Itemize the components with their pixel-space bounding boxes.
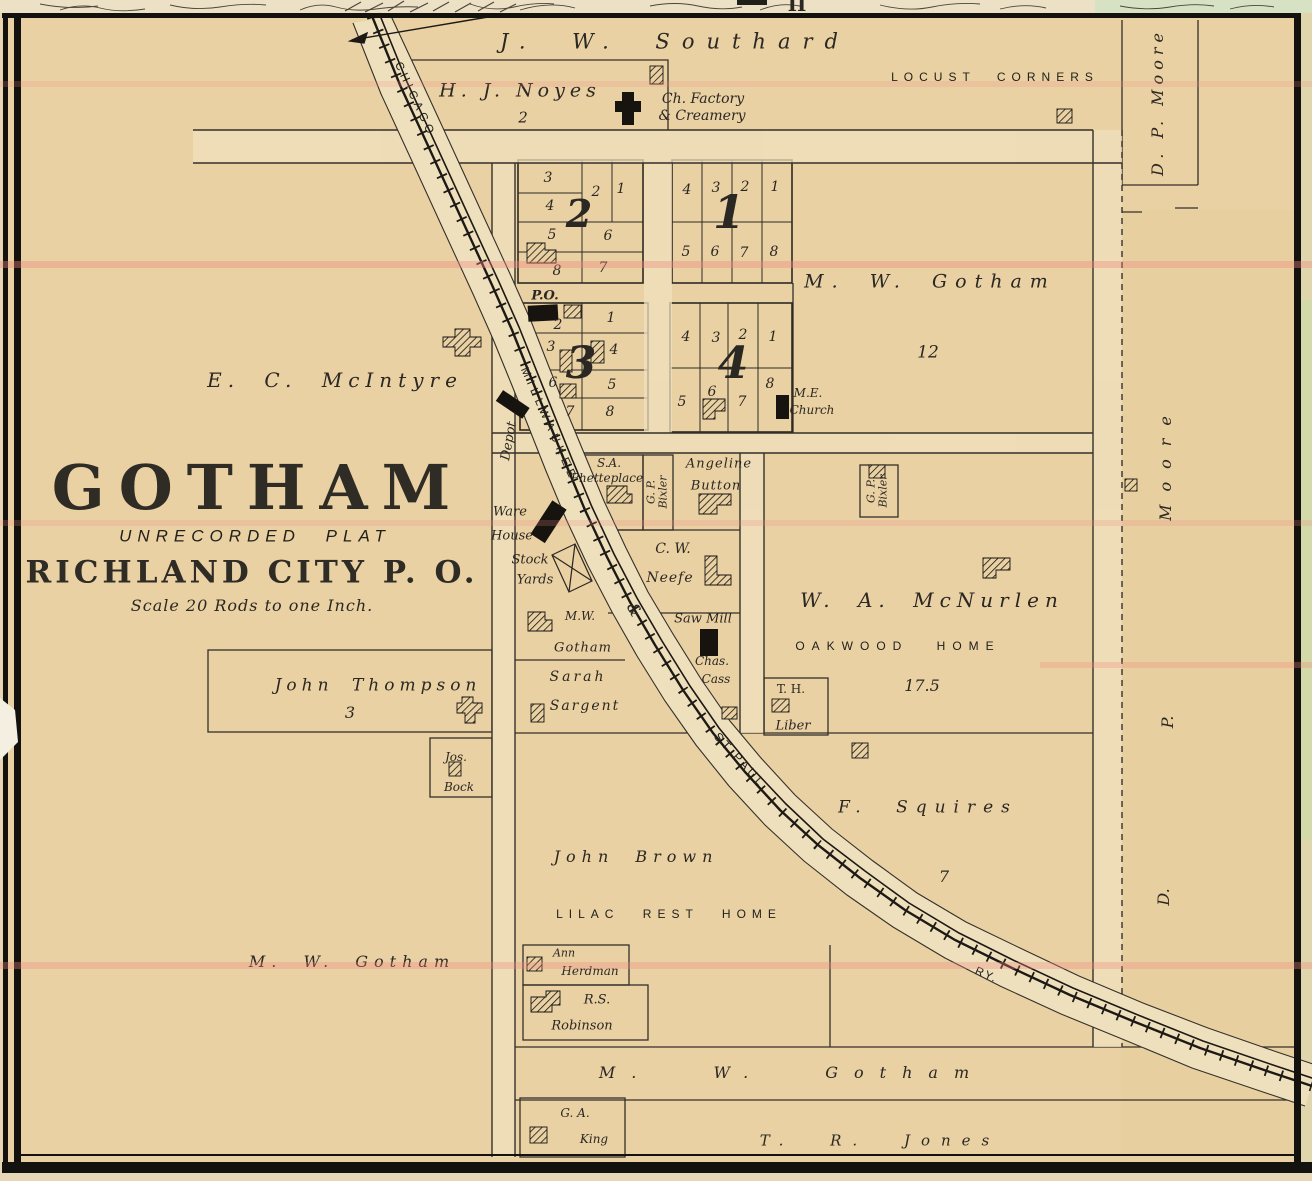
map-title: GOTHAM <box>52 457 464 519</box>
block-3-number: 3 <box>566 342 597 386</box>
block-1-lot: 6 <box>711 245 720 259</box>
owner-bixler-east-initials: G. P. <box>865 479 878 503</box>
owner-jones: T. R. Jones <box>760 1134 1000 1149</box>
block-1-lot: 3 <box>712 181 721 195</box>
feature-stockyards-line2: Yards <box>517 574 554 587</box>
block-3-lot: 6 <box>549 376 558 390</box>
block-4-lot: 7 <box>738 395 747 409</box>
block-1-lot: 8 <box>770 245 779 259</box>
owner-liber-line1: T. H. <box>777 683 805 695</box>
block-3-lot: 7 <box>566 405 575 419</box>
feature-post-office: P.O. <box>531 290 558 303</box>
owner-bixler-west-initials: G. P. <box>645 480 658 504</box>
owner-squires: F. Squires <box>838 800 1018 817</box>
owner-dp-moore-top: D. P. Moore <box>1150 28 1166 176</box>
feature-oakwood-home: OAKWOOD HOME <box>795 640 1000 652</box>
block-3-lot: 5 <box>608 378 617 392</box>
owner-phetteplace-line1: S.A. <box>597 457 621 469</box>
owner-gotham-small-line2: Gotham <box>554 642 612 655</box>
owner-noyes: H. J. Noyes <box>439 82 601 101</box>
block-3-lot: 4 <box>610 343 619 357</box>
block-2-lot: 2 <box>592 185 601 199</box>
owner-bock-line2: Bock <box>444 781 474 793</box>
block-3-lot: 3 <box>547 340 556 354</box>
block-4-lot: 4 <box>682 330 691 344</box>
owner-bixler-west: G. P. Bixler <box>646 475 671 508</box>
block-1-lot: 7 <box>740 246 749 260</box>
feature-sawmill: Saw Mill <box>674 613 732 626</box>
feature-church-line1: M.E. <box>794 387 823 399</box>
owner-dp-moore-right-moore: Moore <box>1158 403 1174 521</box>
owner-noyes-acres: 2 <box>518 111 528 126</box>
owner-gotham-small-line1: M.W. <box>565 610 595 622</box>
block-3-lot: 2 <box>554 318 563 332</box>
map-subtitle: UNRECORDED PLAT <box>119 528 391 545</box>
block-3-lot: 8 <box>606 405 615 419</box>
block-3-lot: 1 <box>607 311 616 325</box>
owner-liber-line2: Liber <box>775 720 810 733</box>
block-4-lot: 3 <box>712 331 721 345</box>
owner-southard: J. W. Southard <box>500 32 850 53</box>
plat-map: II J. W. Southard H. J. Noyes 2 Ch. Fact… <box>0 0 1312 1181</box>
church-building <box>776 395 789 419</box>
owner-dp-moore-right-d: D. <box>1156 888 1172 905</box>
block-2-lot: 8 <box>553 264 562 278</box>
feature-stockyards-line1: Stock <box>511 554 548 567</box>
owner-mcnurlen: W. A. McNurlen <box>800 590 1064 610</box>
owner-sargent-line1: Sarah <box>550 670 607 684</box>
map-post-office-title: RICHLAND CITY P. O. <box>26 558 479 589</box>
block-1-lot: 4 <box>683 183 692 197</box>
block-4-lot: 2 <box>739 328 748 342</box>
owner-dp-moore-right-p: P. <box>1160 716 1176 729</box>
block-4-lot: 1 <box>769 330 778 344</box>
owner-thompson: John Thompson <box>275 678 482 695</box>
owner-angeline-line1: Angeline <box>686 458 752 471</box>
owner-king-line1: G. A. <box>560 1107 589 1119</box>
block-2-lot: 1 <box>617 182 626 196</box>
owner-phetteplace-line2: Phetteplace <box>571 472 643 484</box>
block-2-lot: 5 <box>548 228 557 242</box>
owner-neefe-line2: Neefe <box>646 571 693 585</box>
owner-cass-line1: Chas. <box>695 655 729 667</box>
owner-king-line2: King <box>580 1133 608 1145</box>
owner-robinson-line2: Robinson <box>551 1020 612 1033</box>
map-scale-note: Scale 20 Rods to one Inch. <box>131 598 373 614</box>
feature-warehouse-line1: Ware <box>493 506 527 519</box>
feature-factory-line2: & Creamery <box>658 109 745 123</box>
feature-warehouse-line2: House <box>491 530 533 543</box>
owner-mcintyre: E. C. McIntyre <box>207 370 463 390</box>
map-linework <box>0 0 1312 1181</box>
owner-gotham-12-acres: 12 <box>917 345 939 362</box>
block-2-number: 2 <box>566 195 592 233</box>
owner-herdman-line1: Ann <box>553 948 575 959</box>
owner-sargent-line2: Sargent <box>550 699 621 713</box>
block-4-lot: 5 <box>678 395 687 409</box>
owner-gotham-left: M. W. Gotham <box>249 954 455 970</box>
block-1-lot: 5 <box>682 245 691 259</box>
feature-lilac-rest-home: LILAC REST HOME <box>556 908 782 920</box>
owner-brown: John Brown <box>554 849 719 865</box>
block-4-lot: 8 <box>766 377 775 391</box>
sawmill-building <box>700 629 718 656</box>
feature-church-line2: Church <box>790 404 835 416</box>
owner-bixler-west-surname: Bixler <box>657 475 670 508</box>
block-2-lot: 3 <box>544 171 553 185</box>
owner-bock-line1: Jos. <box>445 751 467 763</box>
owner-neefe-line1: C. W. <box>655 542 691 556</box>
owner-angeline-line2: Button <box>691 480 742 493</box>
owner-herdman-line2: Herdman <box>561 965 618 977</box>
block-2-lot: 6 <box>604 229 613 243</box>
block-2-lot: 4 <box>546 199 555 213</box>
owner-mcnurlen-acres: 17.5 <box>904 678 940 694</box>
feature-locust-corners: LOCUST CORNERS <box>891 71 1099 83</box>
block-2-lot: 7 <box>599 261 608 275</box>
block-1-lot: 1 <box>771 180 780 194</box>
margin-mark: II <box>788 0 807 14</box>
block-4-number: 4 <box>718 342 749 386</box>
block-4-lot: 6 <box>708 385 717 399</box>
owner-robinson-line1: R.S. <box>584 994 611 1007</box>
owner-bixler-east: G. P. Bixler <box>866 474 891 507</box>
owner-gotham-bottom: M. W. Gotham <box>599 1065 985 1081</box>
owner-bixler-east-surname: Bixler <box>877 474 890 507</box>
owner-cass-line2: Cass <box>702 673 731 685</box>
owner-thompson-acres: 3 <box>345 705 355 721</box>
feature-factory-line1: Ch. Factory <box>662 92 744 106</box>
block-1-lot: 2 <box>741 180 750 194</box>
owner-gotham-12: M. W. Gotham <box>804 273 1056 292</box>
owner-squires-acres: 7 <box>939 869 949 885</box>
